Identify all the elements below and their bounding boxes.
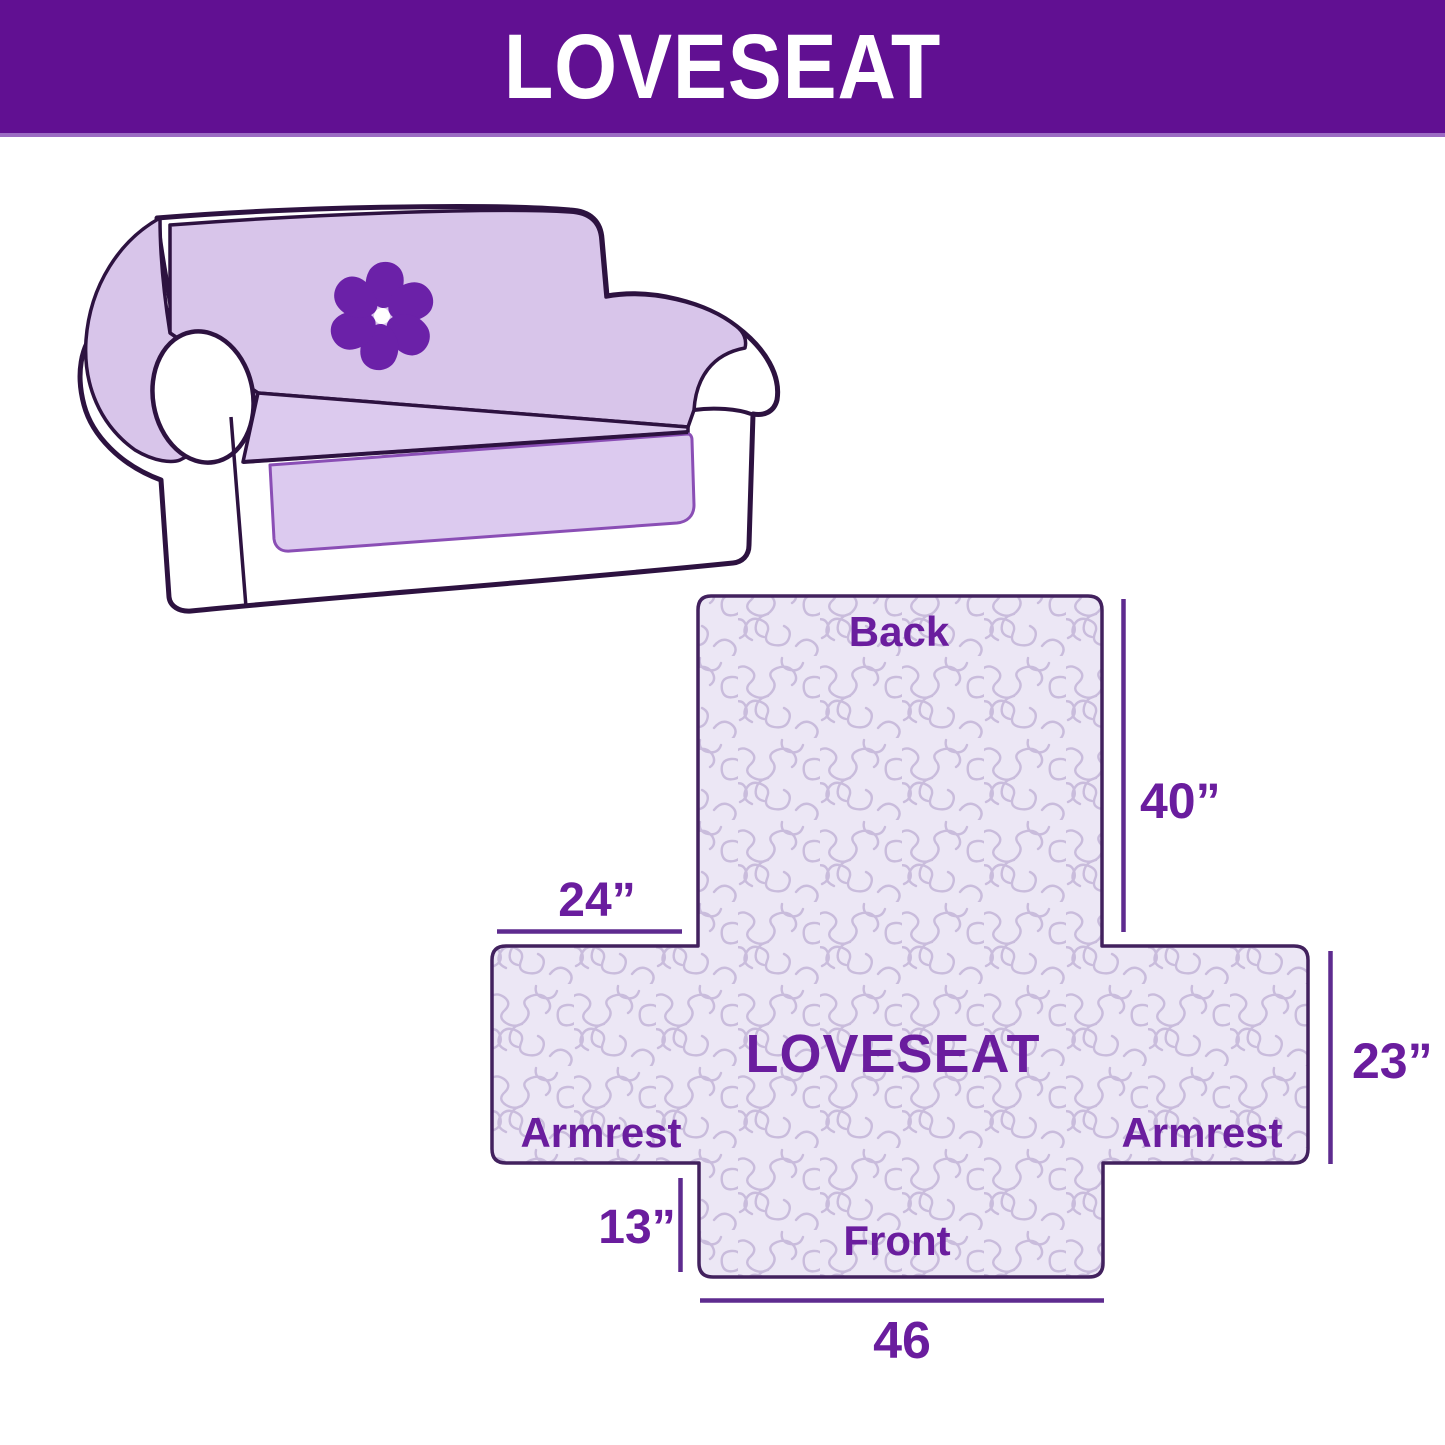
dim-back-height: 40” (1140, 773, 1221, 829)
back-label: Back (849, 608, 950, 655)
dim-front-width: 46 (873, 1312, 931, 1370)
cover-diagram: Back 40” 24” LOVESEAT Armrest Armrest 23… (492, 596, 1433, 1370)
cover-shape (492, 596, 1308, 1277)
dim-side-depth: 23” (1352, 1033, 1433, 1089)
pinwheel-center (374, 308, 390, 324)
armrest-left-label: Armrest (520, 1109, 681, 1156)
sofa-illustration (80, 207, 778, 612)
dim-back-width: 24” (558, 874, 635, 927)
dim-front-drop: 13” (598, 1201, 675, 1254)
armrest-right-label: Armrest (1121, 1109, 1282, 1156)
infographic-stage: Back 40” 24” LOVESEAT Armrest Armrest 23… (0, 0, 1445, 1445)
front-label: Front (843, 1217, 950, 1264)
cover-center-label: LOVESEAT (745, 1024, 1040, 1084)
